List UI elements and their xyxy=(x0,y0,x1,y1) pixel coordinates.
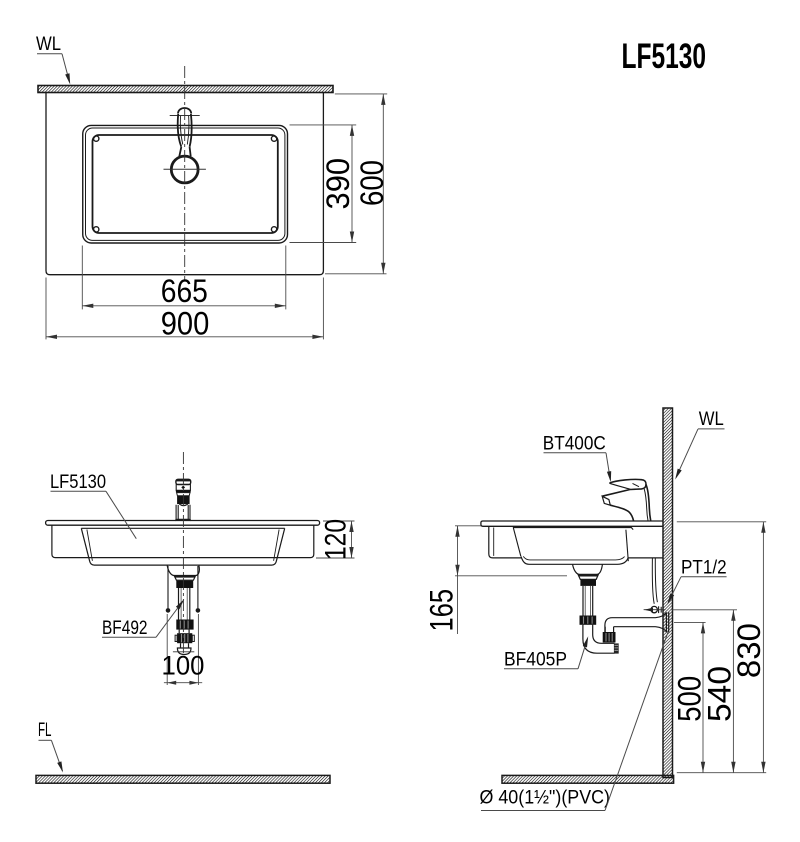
svg-text:BF405P: BF405P xyxy=(504,649,567,671)
svg-text:500: 500 xyxy=(671,676,707,722)
svg-text:FL: FL xyxy=(38,720,52,741)
svg-text:390: 390 xyxy=(320,158,356,210)
svg-text:100: 100 xyxy=(162,651,205,681)
svg-text:600: 600 xyxy=(354,160,390,206)
svg-text:BF492: BF492 xyxy=(102,617,148,639)
svg-text:165: 165 xyxy=(424,589,460,632)
svg-text:665: 665 xyxy=(161,273,208,309)
svg-text:120: 120 xyxy=(320,519,353,560)
svg-text:Ø 40(1½")(PVC): Ø 40(1½")(PVC) xyxy=(480,788,611,809)
svg-text:LF5130: LF5130 xyxy=(50,471,106,493)
svg-text:PT1/2: PT1/2 xyxy=(681,557,727,579)
svg-text:900: 900 xyxy=(161,305,210,341)
svg-text:WL: WL xyxy=(699,409,724,430)
svg-text:LF5130: LF5130 xyxy=(622,36,707,76)
svg-text:WL: WL xyxy=(36,34,61,55)
svg-text:BT400C: BT400C xyxy=(543,433,606,455)
